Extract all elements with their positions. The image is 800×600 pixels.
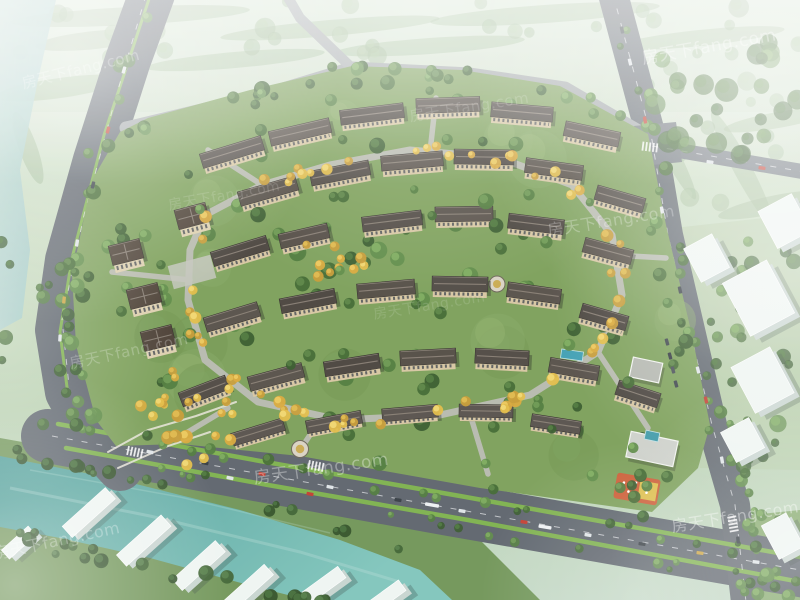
scene-svg: 房天下fang.com房天下fang.com房天下fang.com房天下fang… (0, 0, 800, 600)
aerial-rendering: 房天下fang.com房天下fang.com房天下fang.com房天下fang… (0, 0, 800, 600)
haze-layer (0, 0, 800, 600)
